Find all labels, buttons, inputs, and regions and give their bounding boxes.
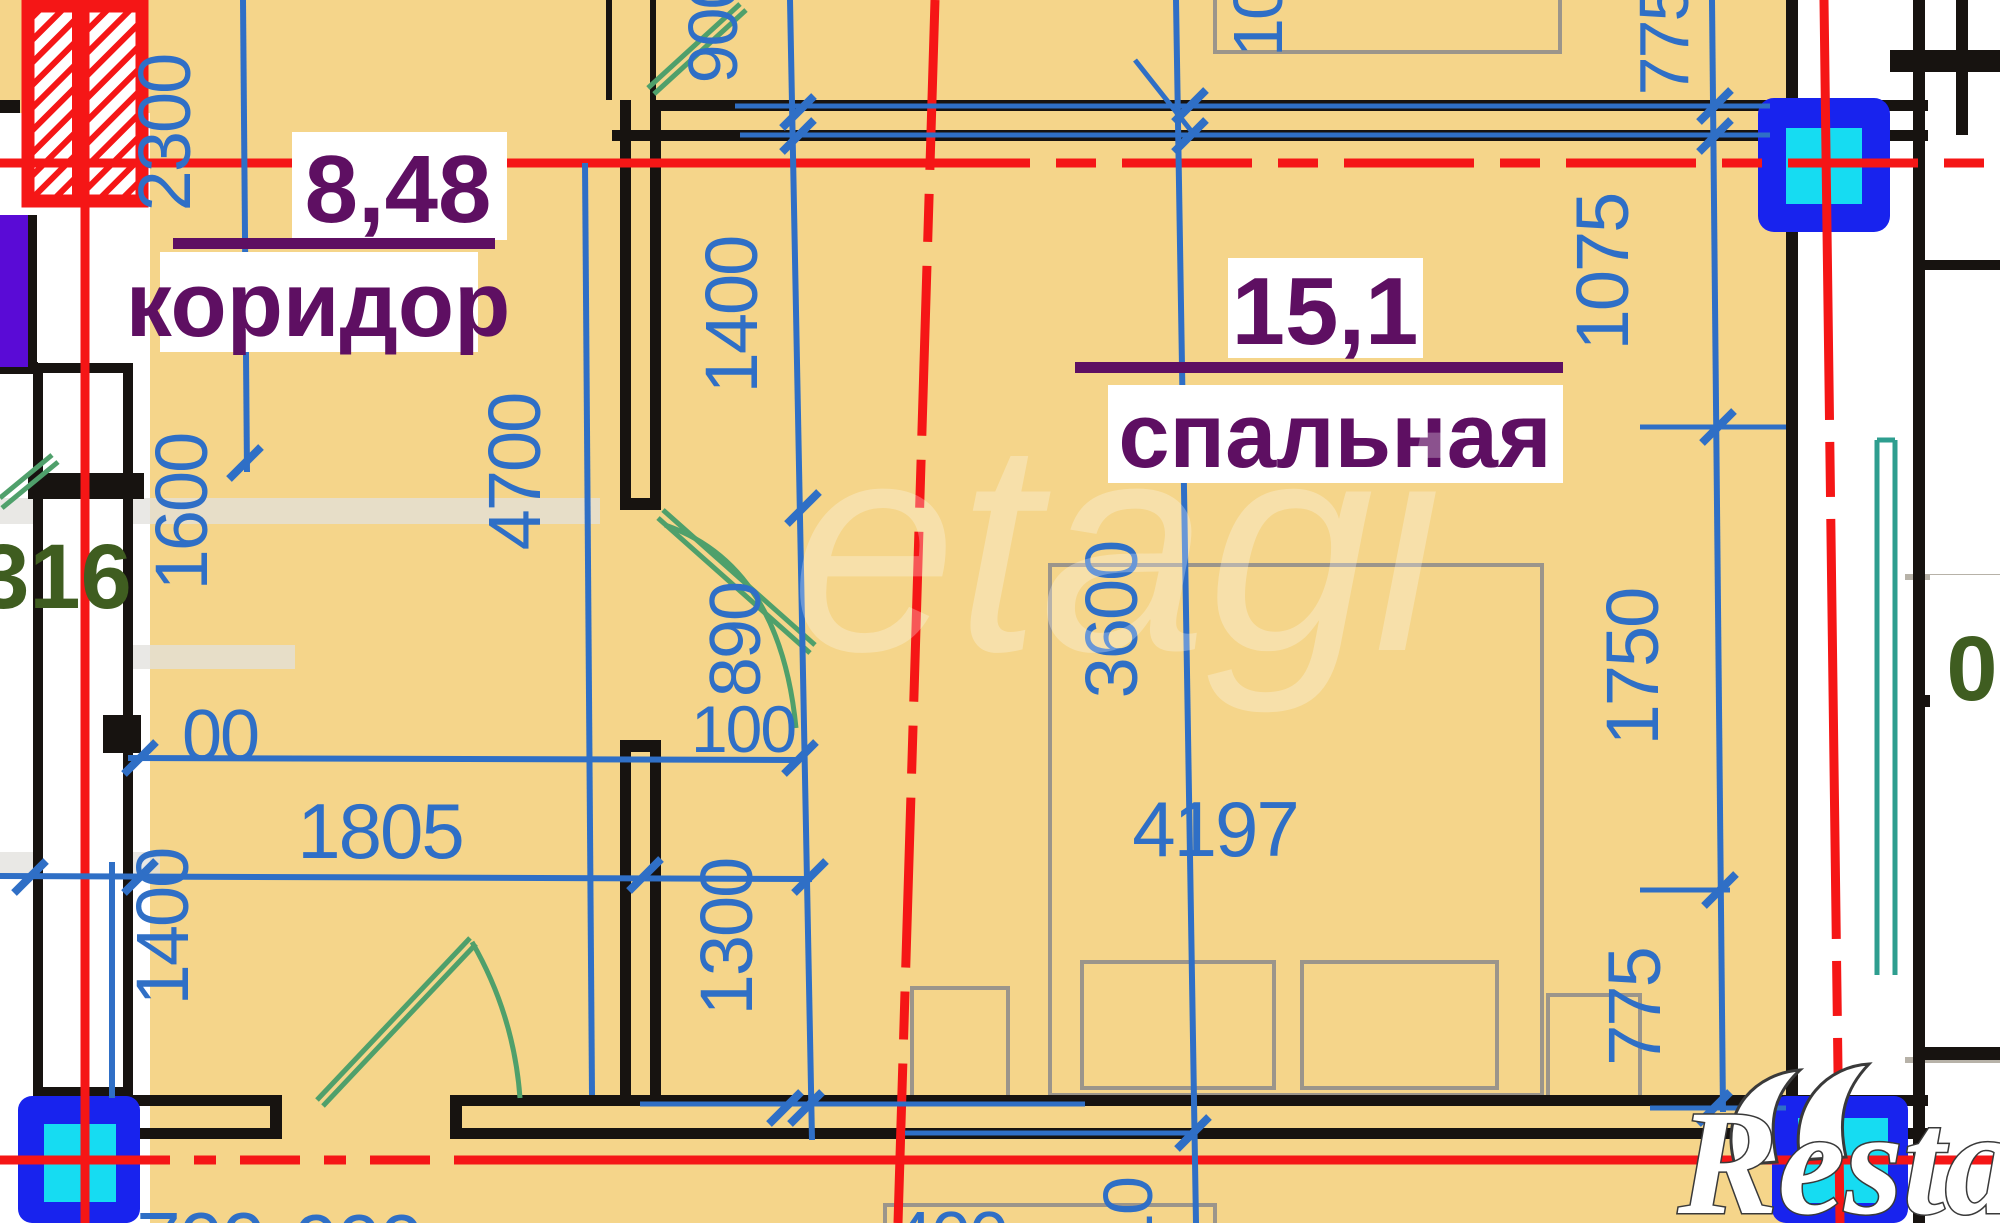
unit-number-left: 316 (0, 526, 132, 628)
dim-890: 890 (696, 583, 776, 697)
dim-1075: 1075 (1561, 194, 1644, 351)
brand-watermark-text: Restate (1677, 1080, 2000, 1223)
bedroom-underline (1075, 362, 1563, 373)
bedroom-area: 15,1 (1232, 258, 1419, 365)
dim-400-bottom: 400 (893, 1198, 1007, 1223)
dim-775-right: 775 (1593, 948, 1676, 1065)
dim-100: 100 (691, 692, 795, 766)
dim-1300: 1300 (685, 859, 768, 1016)
purple-wall-segment (0, 215, 28, 367)
dim-1805: 1805 (297, 787, 463, 875)
corridor-underline (173, 238, 495, 249)
corridor-name: коридор (126, 254, 511, 356)
dim-1600: 1600 (140, 434, 223, 591)
dim-10-bottom: 10 (1089, 1178, 1167, 1223)
dim-900-bottom: 900 (294, 1198, 421, 1223)
dim-775-top: 775 (1625, 0, 1703, 95)
corridor-area: 8,48 (305, 136, 492, 243)
brand-watermark: Restate (1677, 1064, 2000, 1223)
dim-1400-left: 1400 (121, 849, 204, 1006)
dim-2300: 2300 (123, 55, 206, 212)
dim-00: 00 (182, 696, 258, 776)
dim-900-top: 900 (674, 0, 752, 83)
unit-number-right: 0 (1946, 618, 1997, 720)
dim-10-top: 10 (1219, 0, 1297, 57)
dim-700-bottom: 700 (136, 1196, 263, 1223)
dim-4197: 4197 (1132, 785, 1298, 873)
dim-1750: 1750 (1591, 589, 1674, 746)
dim-1400-top: 1400 (690, 237, 773, 394)
floor-plan-drawing: 8,48 коридор 15,1 спальная 316 0 2300 47… (0, 0, 2000, 1223)
dim-4700: 4700 (473, 394, 556, 551)
faint-watermark: etagi (790, 378, 1449, 716)
floor-plan-screenshot: 8,48 коридор 15,1 спальная 316 0 2300 47… (0, 0, 2000, 1223)
